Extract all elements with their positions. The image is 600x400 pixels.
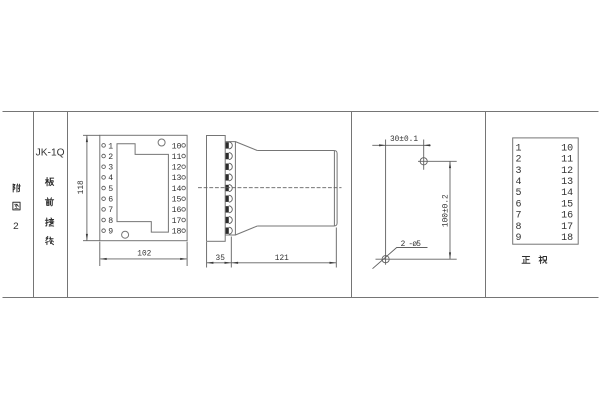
svg-text:16: 16 [172,206,182,215]
svg-text:11: 11 [172,153,182,162]
svg-text:16: 16 [561,211,573,222]
svg-text:5: 5 [516,188,522,199]
svg-text:7: 7 [108,206,113,215]
svg-text:4: 4 [108,174,113,183]
svg-text:11: 11 [561,155,573,166]
svg-text:9: 9 [108,228,113,237]
svg-text:2: 2 [13,222,19,233]
svg-text:2 -ø5: 2 -ø5 [401,241,422,249]
svg-text:18: 18 [561,233,573,244]
svg-text:17: 17 [561,222,573,233]
svg-text:10: 10 [172,142,182,151]
svg-text:10: 10 [561,143,573,154]
svg-text:30±0.1: 30±0.1 [390,136,418,144]
svg-text:8: 8 [108,217,113,226]
svg-text:8: 8 [516,222,522,233]
svg-text:3: 3 [108,164,113,173]
svg-text:15: 15 [561,199,573,210]
svg-text:7: 7 [516,211,522,222]
svg-text:14: 14 [172,185,182,194]
svg-text:1: 1 [516,143,522,154]
svg-text:18: 18 [172,228,182,237]
svg-text:4: 4 [516,177,522,188]
svg-text:9: 9 [516,233,522,244]
svg-text:13: 13 [561,177,573,188]
svg-text:3: 3 [516,166,522,177]
svg-text:35: 35 [216,255,226,263]
svg-text:12: 12 [172,164,182,173]
svg-text:5: 5 [108,185,113,194]
svg-text:14: 14 [561,188,573,199]
svg-text:JK-1Q: JK-1Q [36,147,65,158]
svg-text:17: 17 [172,217,182,226]
svg-text:118: 118 [78,180,86,194]
svg-text:1: 1 [108,142,113,151]
svg-text:2: 2 [108,153,113,162]
svg-text:121: 121 [275,255,289,263]
svg-text:12: 12 [561,166,573,177]
svg-text:6: 6 [516,199,522,210]
svg-text:15: 15 [172,196,182,205]
svg-text:102: 102 [137,251,151,259]
svg-text:6: 6 [108,196,113,205]
svg-text:100±0.2: 100±0.2 [443,194,451,227]
svg-text:13: 13 [172,174,182,183]
svg-text:2: 2 [516,155,522,166]
